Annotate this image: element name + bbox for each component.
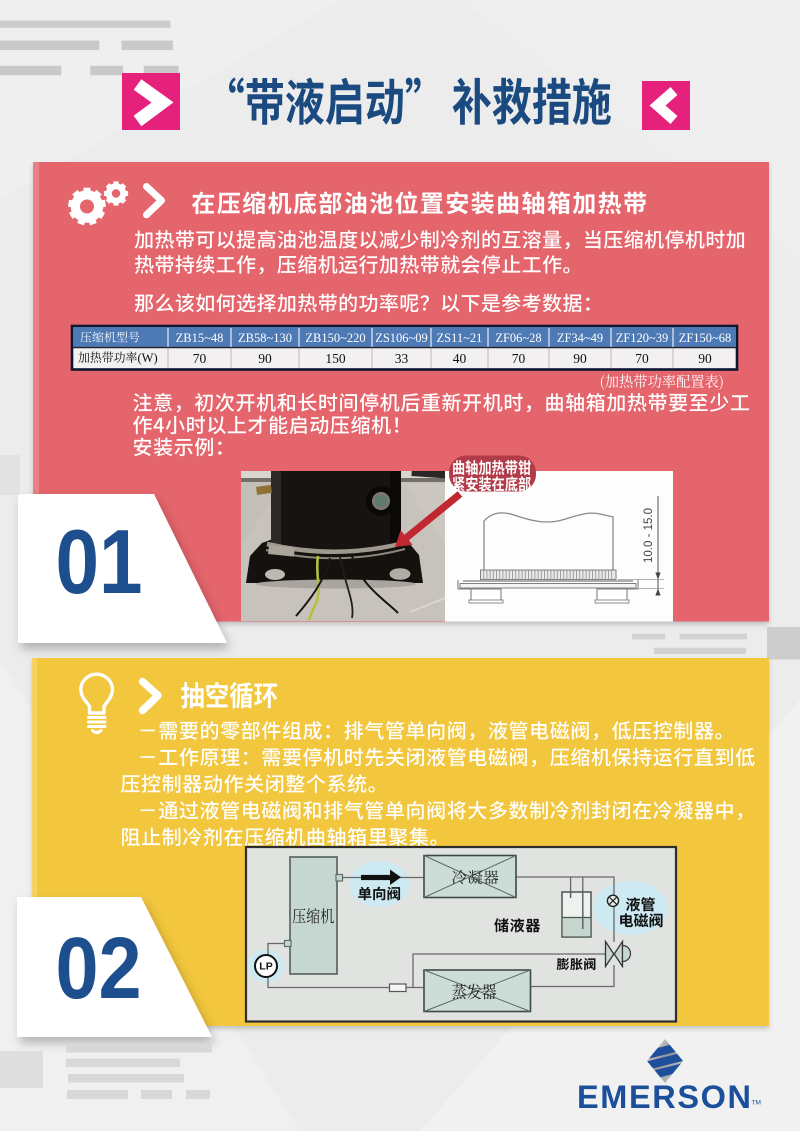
- svg-text:90: 90: [573, 351, 587, 366]
- svg-text:EMERSON: EMERSON: [577, 1079, 751, 1115]
- svg-text:ZF34~49: ZF34~49: [557, 331, 603, 345]
- svg-text:ZF120~39: ZF120~39: [616, 331, 669, 345]
- svg-text:70: 70: [635, 351, 649, 366]
- svg-text:(W): (W): [138, 351, 158, 365]
- svg-text:33: 33: [395, 351, 409, 366]
- svg-text:10.0 - 15.0: 10.0 - 15.0: [643, 508, 655, 563]
- svg-text:LP: LP: [259, 961, 272, 973]
- svg-text:ZS11~21: ZS11~21: [437, 331, 483, 345]
- svg-text:ZB150~220: ZB150~220: [305, 331, 365, 345]
- svg-text:ZS106~09: ZS106~09: [375, 331, 428, 345]
- svg-text:70: 70: [512, 351, 526, 366]
- svg-text:40: 40: [453, 351, 467, 366]
- svg-text:01: 01: [56, 510, 143, 612]
- svg-text:TM: TM: [752, 1100, 761, 1107]
- svg-text:150: 150: [325, 351, 346, 366]
- svg-text:70: 70: [193, 351, 207, 366]
- svg-text:ZF06~28: ZF06~28: [495, 331, 541, 345]
- svg-text:ZB15~48: ZB15~48: [176, 331, 224, 345]
- svg-text:02: 02: [56, 920, 142, 1017]
- svg-text:ZB58~130: ZB58~130: [238, 331, 292, 345]
- svg-text:ZF150~68: ZF150~68: [679, 331, 732, 345]
- svg-text:90: 90: [698, 351, 712, 366]
- svg-text:90: 90: [258, 351, 272, 366]
